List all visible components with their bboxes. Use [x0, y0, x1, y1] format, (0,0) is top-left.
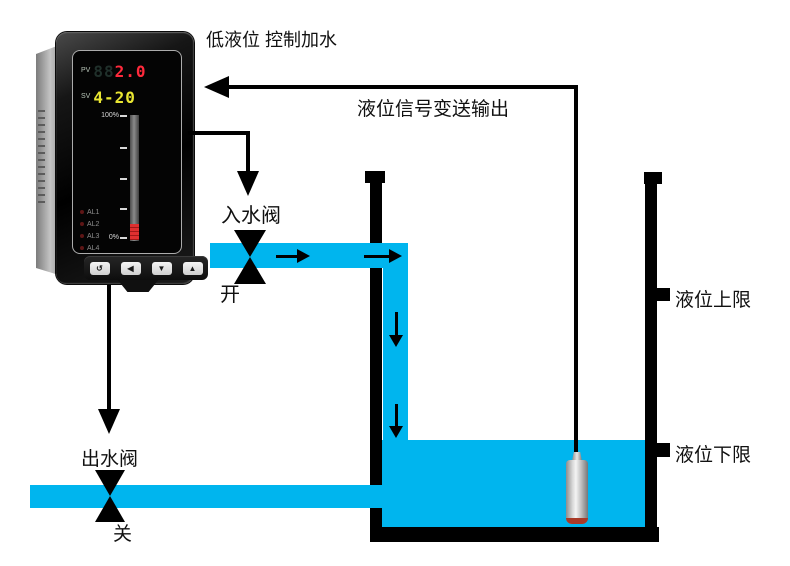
bargraph-tick — [120, 237, 127, 239]
alarm-led-icon — [80, 234, 84, 238]
tank-bottom — [370, 527, 659, 542]
probe-bottom-ring — [566, 518, 588, 524]
alarm-led-icon — [80, 222, 84, 226]
bargraph-tick — [120, 178, 127, 180]
flow-arrow-right-icon — [276, 249, 311, 263]
upper-limit-label: 液位上限 — [675, 285, 751, 312]
control-line-inlet-vertical — [246, 131, 250, 173]
alarm-led-icon — [80, 210, 84, 214]
loop-button: ↺ — [90, 262, 110, 275]
tank-water-pool — [378, 440, 648, 530]
signal-arrowhead-icon — [204, 76, 229, 98]
pv-value: 2.0 — [115, 64, 147, 80]
level-sensor-probe — [566, 452, 588, 524]
alarm-row: AL1 — [80, 206, 99, 218]
probe-body — [566, 460, 588, 524]
alarm-row: AL3 — [80, 230, 99, 242]
outlet-valve-state-label: 关 — [113, 519, 132, 546]
upper-limit-marker — [656, 288, 670, 301]
pv-readout: PV 88 2.0 — [81, 64, 147, 80]
outlet-valve-label: 出水阀 — [81, 444, 138, 471]
alarm-label: AL1 — [87, 209, 99, 216]
bargraph-tick — [120, 208, 127, 210]
shift-left-button: ◀ — [121, 262, 141, 275]
lower-limit-label: 液位下限 — [675, 440, 751, 467]
device-front-face: PV 88 2.0 SV 4-20 100% 0% — [56, 32, 194, 284]
signal-output-label: 液位信号变送输出 — [357, 94, 509, 121]
inlet-valve-state-label: 开 — [220, 278, 240, 307]
control-line-inlet-horizontal — [188, 131, 250, 135]
control-arrowhead-outlet-icon — [98, 409, 120, 434]
alarm-led-icon — [80, 246, 84, 250]
panel-mount-tab — [116, 280, 160, 292]
bargraph-tick — [120, 115, 127, 117]
alarm-label: AL3 — [87, 233, 99, 240]
alarm-indicators: AL1 AL2 AL3 AL4 — [80, 206, 99, 254]
outlet-valve-symbol — [95, 470, 125, 522]
alarm-label: AL2 — [87, 221, 99, 228]
alarm-row: AL2 — [80, 218, 99, 230]
down-button: ▼ — [152, 262, 172, 275]
top-note-label: 低液位 控制加水 — [206, 26, 337, 52]
signal-line-horizontal — [226, 85, 578, 89]
sv-label: SV — [81, 93, 90, 106]
flow-arrow-down-icon — [389, 404, 403, 438]
tank-right-wall — [645, 177, 657, 527]
alarm-row: AL4 — [80, 242, 99, 254]
lower-limit-marker — [656, 443, 670, 457]
sv-value: 4-20 — [93, 90, 136, 106]
pv-ghost-digits: 88 — [93, 64, 114, 80]
tank-left-wall — [370, 176, 382, 527]
inlet-valve-label: 入水阀 — [221, 199, 281, 228]
bargraph-tick — [120, 147, 127, 149]
flow-arrow-down-icon — [389, 312, 403, 347]
control-arrowhead-inlet-icon — [237, 171, 259, 196]
bargraph-fill — [130, 224, 139, 240]
sensor-cable — [574, 85, 578, 454]
sv-readout: SV 4-20 — [81, 90, 136, 106]
outlet-pipe-water — [30, 485, 383, 508]
up-button: ▲ — [183, 262, 203, 275]
flow-arrow-right-icon — [364, 249, 403, 263]
level-controller-device: PV 88 2.0 SV 4-20 100% 0% — [36, 30, 198, 294]
device-display: PV 88 2.0 SV 4-20 100% 0% — [72, 50, 182, 254]
bargraph-top-label: 100% — [87, 112, 119, 119]
control-line-outlet-vertical — [107, 285, 111, 411]
device-button-row: ↺ ◀ ▼ ▲ — [84, 256, 208, 280]
level-control-diagram: 低液位 控制加水 液位信号变送输出 入水阀 开 出水阀 关 液位上限 液位下限 — [0, 0, 790, 566]
inlet-valve-symbol — [234, 230, 266, 284]
alarm-label: AL4 — [87, 245, 99, 252]
pv-label: PV — [81, 67, 90, 80]
vent-slots — [38, 110, 45, 206]
bargraph-track — [130, 115, 139, 241]
